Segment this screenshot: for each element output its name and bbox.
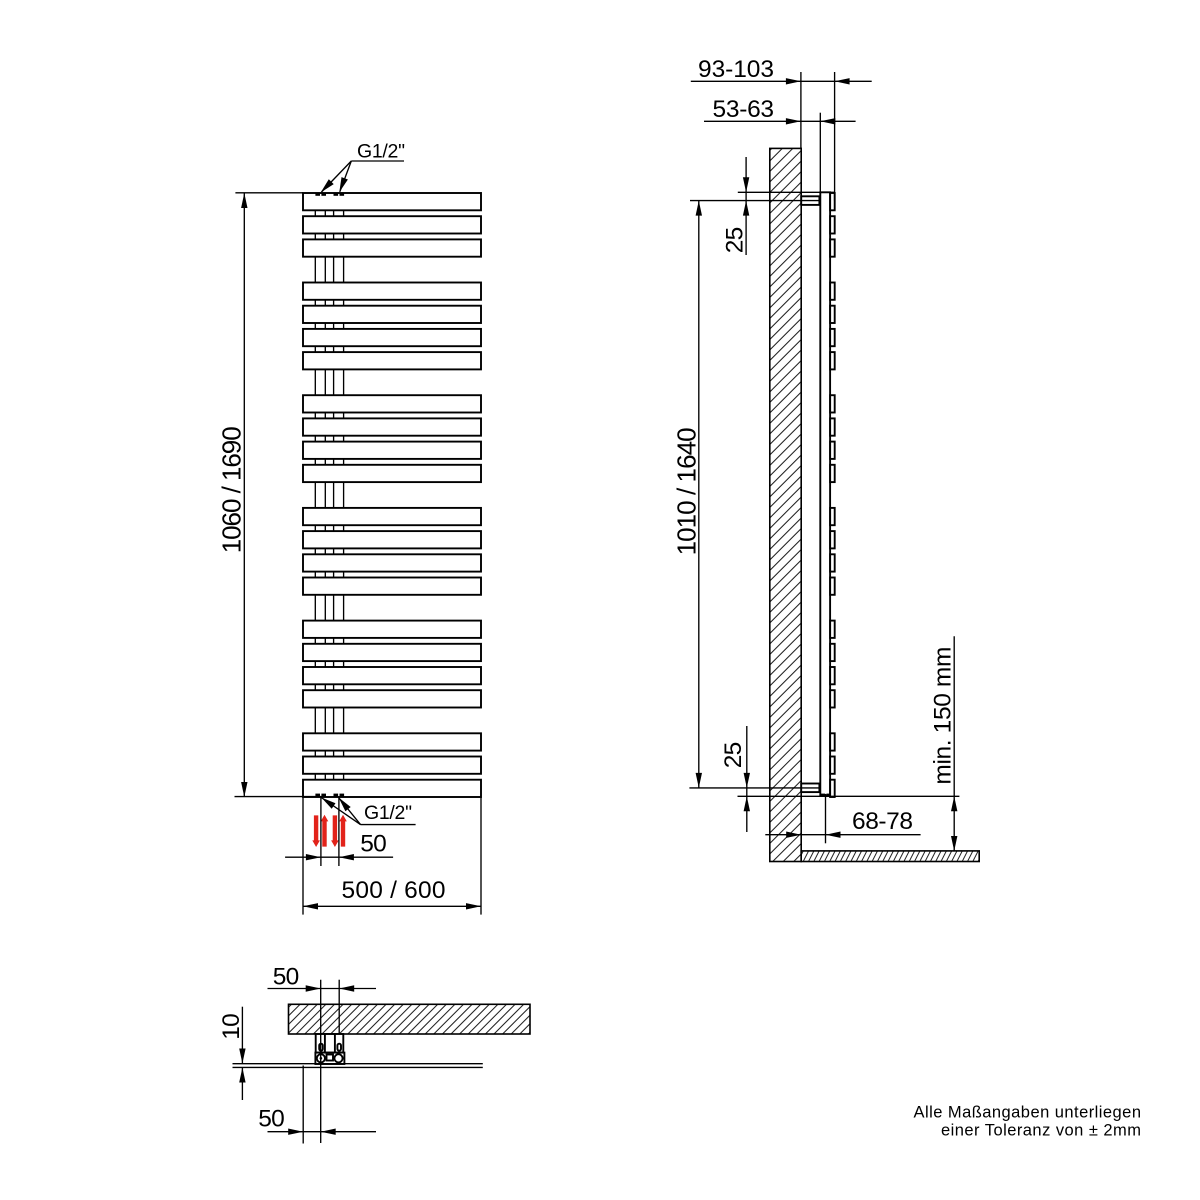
svg-text:1060 / 1690: 1060 / 1690 [217, 426, 247, 553]
svg-text:50: 50 [273, 964, 300, 991]
svg-text:Alle Maßangaben unterliegen: Alle Maßangaben unterliegen [914, 1104, 1142, 1122]
svg-text:min. 150 mm: min. 150 mm [930, 647, 957, 785]
svg-text:G1/2": G1/2" [364, 802, 412, 824]
svg-text:25: 25 [722, 227, 749, 254]
svg-text:1010 / 1640: 1010 / 1640 [672, 427, 702, 555]
svg-text:50: 50 [360, 831, 387, 858]
svg-text:500 / 600: 500 / 600 [342, 877, 446, 904]
svg-text:10: 10 [218, 1013, 245, 1040]
svg-text:53-63: 53-63 [713, 96, 775, 123]
svg-text:einer Toleranz von ± 2mm: einer Toleranz von ± 2mm [941, 1122, 1141, 1140]
svg-text:25: 25 [720, 742, 747, 769]
svg-text:93-103: 93-103 [698, 56, 774, 83]
svg-text:G1/2": G1/2" [357, 140, 405, 162]
svg-text:50: 50 [258, 1106, 285, 1133]
svg-text:68-78: 68-78 [852, 808, 913, 835]
